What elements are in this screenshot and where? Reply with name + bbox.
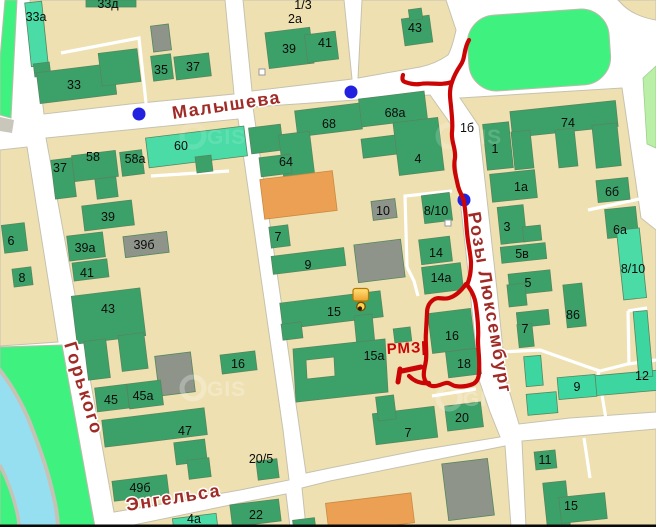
svg-text:37: 37: [186, 60, 200, 74]
svg-text:5в: 5в: [515, 247, 529, 261]
svg-text:4а: 4а: [187, 512, 201, 526]
svg-text:37: 37: [53, 161, 67, 175]
svg-text:15а: 15а: [364, 349, 385, 363]
svg-text:14: 14: [429, 246, 443, 260]
svg-text:74: 74: [561, 116, 575, 130]
svg-text:33д: 33д: [97, 0, 119, 11]
svg-text:6: 6: [8, 234, 15, 248]
svg-text:39б: 39б: [133, 238, 154, 252]
svg-text:2а: 2а: [288, 12, 302, 26]
svg-text:39: 39: [101, 210, 115, 224]
svg-text:41: 41: [318, 36, 332, 50]
svg-text:45: 45: [104, 393, 118, 407]
svg-text:60: 60: [174, 139, 188, 153]
svg-text:GIS: GIS: [207, 378, 246, 401]
svg-text:5: 5: [525, 276, 532, 290]
svg-text:64: 64: [279, 155, 293, 169]
svg-text:39а: 39а: [75, 241, 96, 255]
svg-text:7: 7: [405, 426, 412, 440]
svg-text:15: 15: [564, 499, 578, 513]
svg-text:11: 11: [539, 453, 552, 467]
svg-text:33а: 33а: [26, 10, 47, 24]
svg-text:РМЗ[: РМЗ[: [386, 339, 428, 358]
svg-text:68а: 68а: [385, 106, 406, 120]
svg-text:1а: 1а: [514, 180, 528, 194]
svg-text:14а: 14а: [431, 271, 452, 285]
svg-text:39: 39: [282, 42, 296, 56]
svg-text:49б: 49б: [129, 481, 150, 495]
svg-text:4: 4: [415, 152, 422, 166]
svg-text:58а: 58а: [125, 152, 146, 166]
svg-text:16: 16: [445, 329, 459, 343]
svg-text:9: 9: [305, 258, 312, 272]
svg-text:8: 8: [19, 271, 26, 285]
svg-text:16: 16: [231, 357, 245, 371]
svg-text:GIS: GIS: [207, 126, 246, 149]
svg-text:8/10: 8/10: [424, 204, 448, 218]
svg-text:45а: 45а: [133, 389, 154, 403]
svg-text:10: 10: [376, 204, 390, 218]
svg-text:22: 22: [249, 508, 263, 522]
svg-text:41: 41: [80, 266, 94, 280]
svg-text:33: 33: [67, 78, 81, 92]
svg-text:1: 1: [492, 142, 499, 156]
svg-text:6б: 6б: [605, 185, 619, 199]
svg-text:12: 12: [635, 369, 649, 383]
svg-text:43: 43: [408, 21, 422, 35]
svg-text:47: 47: [178, 424, 192, 438]
svg-text:68: 68: [322, 117, 336, 131]
svg-text:9: 9: [574, 380, 581, 394]
svg-text:8/10: 8/10: [621, 262, 645, 276]
svg-text:15: 15: [327, 305, 341, 319]
svg-text:1/3: 1/3: [294, 0, 311, 12]
svg-text:7: 7: [522, 322, 529, 336]
svg-text:7: 7: [275, 230, 282, 244]
svg-text:58: 58: [86, 150, 100, 164]
svg-text:18: 18: [457, 357, 471, 371]
svg-text:86: 86: [566, 308, 580, 322]
svg-text:20/5: 20/5: [249, 452, 273, 466]
svg-text:43: 43: [101, 302, 115, 316]
svg-text:35: 35: [154, 63, 168, 77]
svg-text:3: 3: [504, 220, 511, 234]
svg-text:1б: 1б: [460, 121, 474, 135]
svg-text:20: 20: [455, 411, 469, 425]
svg-text:6а: 6а: [613, 223, 627, 237]
